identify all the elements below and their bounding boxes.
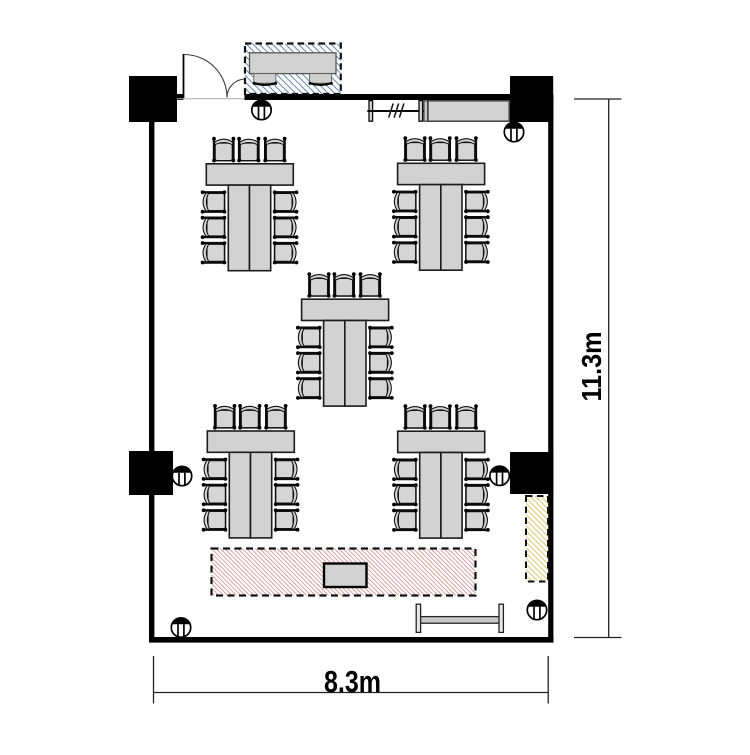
svg-text:11.3m: 11.3m	[576, 332, 607, 402]
svg-text:8.3m: 8.3m	[324, 665, 381, 699]
